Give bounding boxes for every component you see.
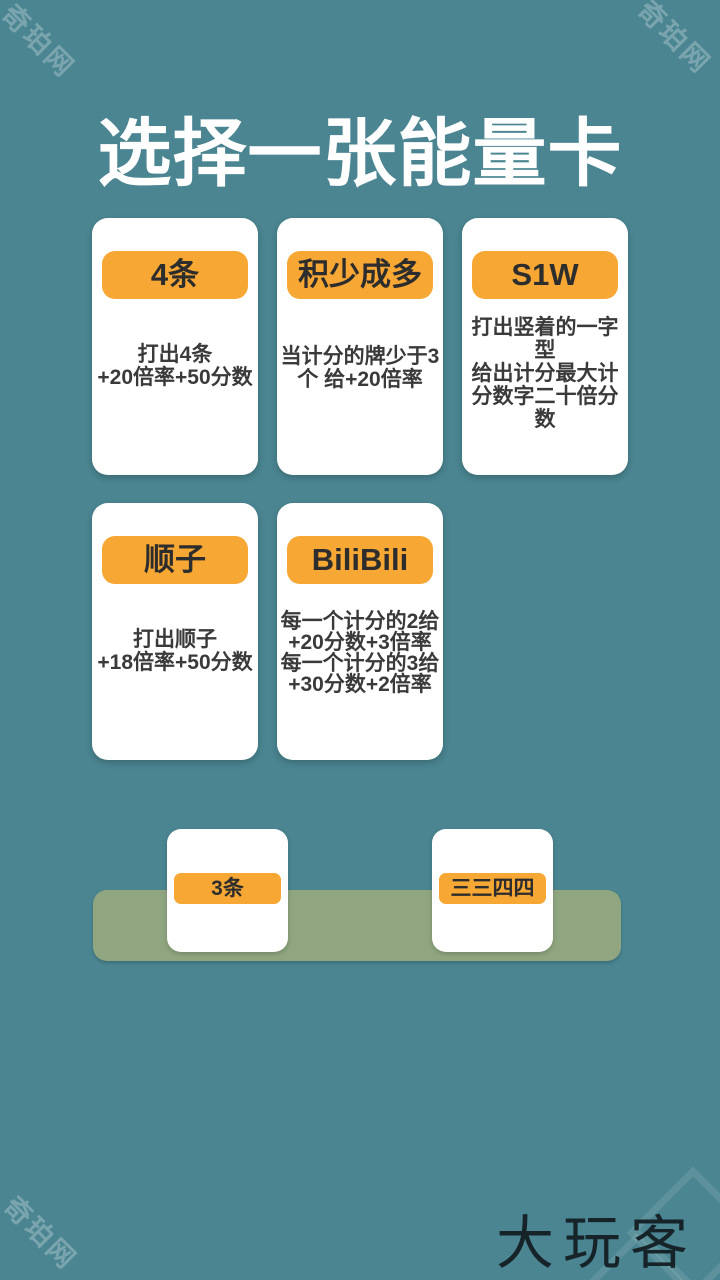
card-label-badge: BiliBili: [287, 536, 433, 584]
corner-watermark: 奇珀网: [0, 0, 86, 85]
card-description: 打出顺子 +18倍率+50分数: [94, 629, 256, 674]
energy-card-jishaochengduo[interactable]: 积少成多 当计分的牌少于3 个 给+20倍率: [277, 218, 443, 475]
hand-card-label-badge: 三三四四: [439, 873, 546, 904]
brand-logo: 大玩客: [496, 1196, 720, 1280]
energy-card-s1w[interactable]: S1W 打出竖着的一字 型 给出计分最大计 分数字二十倍分 数: [462, 218, 628, 475]
page-title: 选择一张能量卡: [0, 94, 720, 201]
game-screen: 奇珀网 奇珀网 奇珀网 选择一张能量卡 4条 打出4条 +20倍率+50分数 积…: [0, 0, 720, 1280]
hand-card-3tiao[interactable]: 3条: [167, 829, 288, 952]
card-description: 当计分的牌少于3 个 给+20倍率: [279, 346, 441, 391]
card-label-badge: S1W: [472, 251, 618, 299]
card-description: 打出竖着的一字 型 给出计分最大计 分数字二十倍分 数: [464, 316, 626, 431]
card-description: 每一个计分的2给 +20分数+3倍率 每一个计分的3给 +30分数+2倍率: [279, 611, 441, 695]
card-description: 打出4条 +20倍率+50分数: [94, 344, 256, 389]
corner-watermark: 奇珀网: [630, 0, 720, 81]
hand-card-sansansisi[interactable]: 三三四四: [432, 829, 553, 952]
energy-card-bilibili[interactable]: BiliBili 每一个计分的2给 +20分数+3倍率 每一个计分的3给 +30…: [277, 503, 443, 760]
card-label-badge: 顺子: [102, 536, 248, 584]
corner-watermark: 奇珀网: [0, 1186, 88, 1277]
card-label-badge: 积少成多: [287, 251, 433, 299]
energy-card-shunzi[interactable]: 顺子 打出顺子 +18倍率+50分数: [92, 503, 258, 760]
energy-card-4tiao[interactable]: 4条 打出4条 +20倍率+50分数: [92, 218, 258, 475]
card-label-badge: 4条: [102, 251, 248, 299]
hand-card-label-badge: 3条: [174, 873, 281, 904]
